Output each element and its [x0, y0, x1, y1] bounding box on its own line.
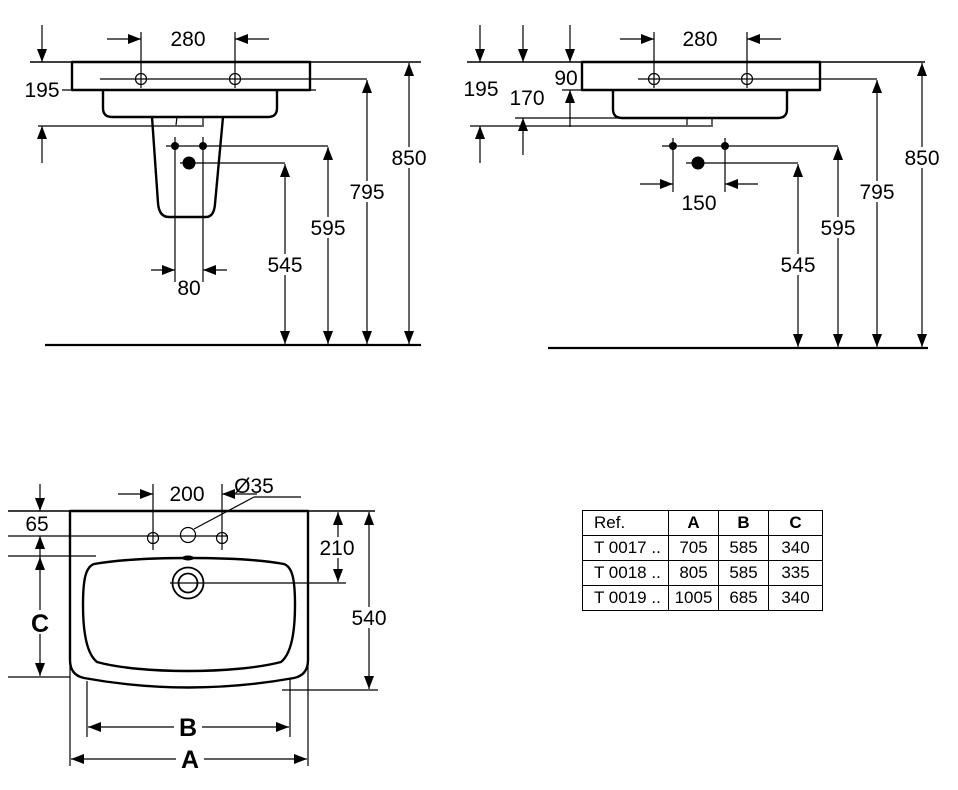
basin-body: [613, 90, 787, 118]
table-row: T 0019 .. 1005 685 340: [583, 586, 823, 611]
dim-label-B: B: [179, 714, 197, 742]
trap-point: [183, 157, 196, 170]
plan-view: 65 200 Ø35 210 540 C B A: [8, 475, 392, 774]
table-row: T 0018 .. 805 585 335: [583, 561, 823, 586]
table-header-a: A: [669, 511, 719, 536]
bowl-outline: [83, 558, 295, 671]
table-row: T 0017 .. 705 585 340: [583, 536, 823, 561]
dim-label-850: 850: [391, 147, 426, 170]
dim-label-C: C: [31, 610, 49, 638]
dim-label-280: 280: [170, 28, 205, 51]
table-cell-ref: T 0017 ..: [583, 536, 669, 561]
dim-label-595: 595: [820, 217, 855, 240]
pedestal-side-view: 280 195 80 545 595 795 850: [24, 25, 431, 345]
table-cell: 805: [669, 561, 719, 586]
table-cell: 340: [769, 536, 823, 561]
table-header-ref: Ref.: [583, 511, 669, 536]
table-cell-ref: T 0019 ..: [583, 586, 669, 611]
taphole-center: [181, 528, 196, 543]
page: 280 195 80 545 595 795 850: [0, 0, 958, 790]
dim-label-80: 80: [177, 277, 200, 300]
wall-mount-side-view: 280 195 170 90 150 545 595 795 850: [463, 25, 944, 348]
dim-label-200: 200: [169, 483, 204, 506]
overflow-slot: [182, 556, 194, 561]
dimension-table-container: Ref. A B C T 0017 .. 705 585 340 T 0018 …: [582, 510, 823, 611]
table-cell: 335: [769, 561, 823, 586]
table-cell: 1005: [669, 586, 719, 611]
table-cell-ref: T 0018 ..: [583, 561, 669, 586]
dim-label-90: 90: [554, 67, 577, 90]
dim-label-795: 795: [349, 181, 384, 204]
dim-label-195: 195: [463, 78, 498, 101]
dim-label-545: 545: [780, 254, 815, 277]
dim-label-545: 545: [267, 254, 302, 277]
dim-label-795: 795: [859, 181, 894, 204]
trap-point: [692, 157, 705, 170]
table-header-b: B: [719, 511, 769, 536]
table-cell: 340: [769, 586, 823, 611]
table-cell: 685: [719, 586, 769, 611]
dim-label-595: 595: [310, 217, 345, 240]
table-cell: 585: [719, 536, 769, 561]
dim-label-65: 65: [25, 513, 48, 536]
dim-label-diameter-35: Ø35: [234, 475, 274, 498]
table-header-row: Ref. A B C: [583, 511, 823, 536]
dim-label-A: A: [181, 746, 199, 774]
dim-label-850: 850: [904, 147, 939, 170]
dim-label-210: 210: [319, 537, 354, 560]
technical-drawing-canvas: 280 195 80 545 595 795 850: [0, 0, 958, 790]
table-cell: 585: [719, 561, 769, 586]
basin-body: [103, 90, 277, 117]
dim-label-280: 280: [682, 28, 717, 51]
dim-label-195: 195: [24, 79, 59, 102]
dim-label-150: 150: [681, 192, 716, 215]
dim-label-540: 540: [351, 607, 386, 630]
basin-rim: [72, 62, 310, 90]
table-cell: 705: [669, 536, 719, 561]
table-header-c: C: [769, 511, 823, 536]
dimensions-table: Ref. A B C T 0017 .. 705 585 340 T 0018 …: [582, 510, 823, 611]
dim-label-170: 170: [509, 87, 544, 110]
basin-rim: [582, 62, 820, 90]
